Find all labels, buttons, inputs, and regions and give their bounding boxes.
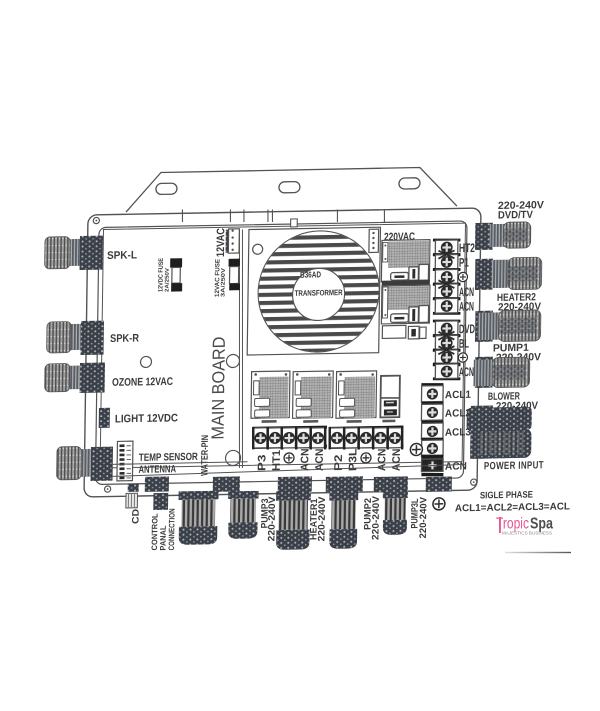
svg-text:MAIN BOARD: MAIN BOARD [207,336,228,439]
svg-text:SPK-L: SPK-L [107,249,137,262]
svg-text:TEMP SENSOR: TEMP SENSOR [139,451,198,464]
svg-text:ACL1: ACL1 [445,389,471,401]
svg-text:ACN: ACN [391,448,403,471]
svg-text:220-240V: 220-240V [370,495,382,540]
svg-text:DVD: DVD [459,322,475,336]
svg-text:12VAC: 12VAC [215,228,227,257]
svg-text:ACN: ACN [314,448,326,471]
svg-text:2A/250V: 2A/250V [164,268,170,292]
svg-text:ACN: ACN [459,285,474,299]
svg-text:220-240V: 220-240V [266,496,278,542]
svg-text:ACN: ACN [445,460,467,472]
svg-text:ACL1=ACL2=ACL3=ACL: ACL1=ACL2=ACL3=ACL [455,501,570,514]
svg-text:TRANSFORMER: TRANSFORMER [295,288,343,298]
svg-text:P3: P3 [256,454,268,471]
svg-text:Spa: Spa [530,516,553,533]
svg-text:BL: BL [459,337,469,351]
svg-text:B36AD: B36AD [300,269,321,279]
svg-text:220-240V: 220-240V [316,496,328,542]
svg-text:3A/250V: 3A/250V [221,268,227,297]
svg-text:ACN: ACN [459,365,474,379]
svg-text:CONNECTION: CONNECTION [167,508,177,550]
svg-text:ACN: ACN [299,448,311,471]
svg-text:SIGLE PHASE: SIGLE PHASE [480,490,533,502]
svg-text:HT2: HT2 [459,241,475,255]
svg-text:DVD/TV: DVD/TV [498,209,533,222]
svg-text:MAJESTICS BUSINESS: MAJESTICS BUSINESS [502,531,552,537]
svg-text:LIGHT 12VDC: LIGHT 12VDC [115,412,178,425]
svg-text:Tropic: Tropic [496,516,529,533]
svg-text:ACN: ACN [459,300,474,314]
svg-text:220-240V: 220-240V [418,496,430,538]
svg-text:CD: CD [131,509,142,524]
svg-text:P1: P1 [459,256,469,270]
svg-text:SPK-R: SPK-R [110,332,139,345]
svg-text:WATER-PIN: WATER-PIN [199,435,211,476]
svg-text:OZONE 12VAC: OZONE 12VAC [112,376,173,389]
svg-text:POWER INPUT: POWER INPUT [484,459,544,472]
svg-text:HT1: HT1 [271,450,283,471]
